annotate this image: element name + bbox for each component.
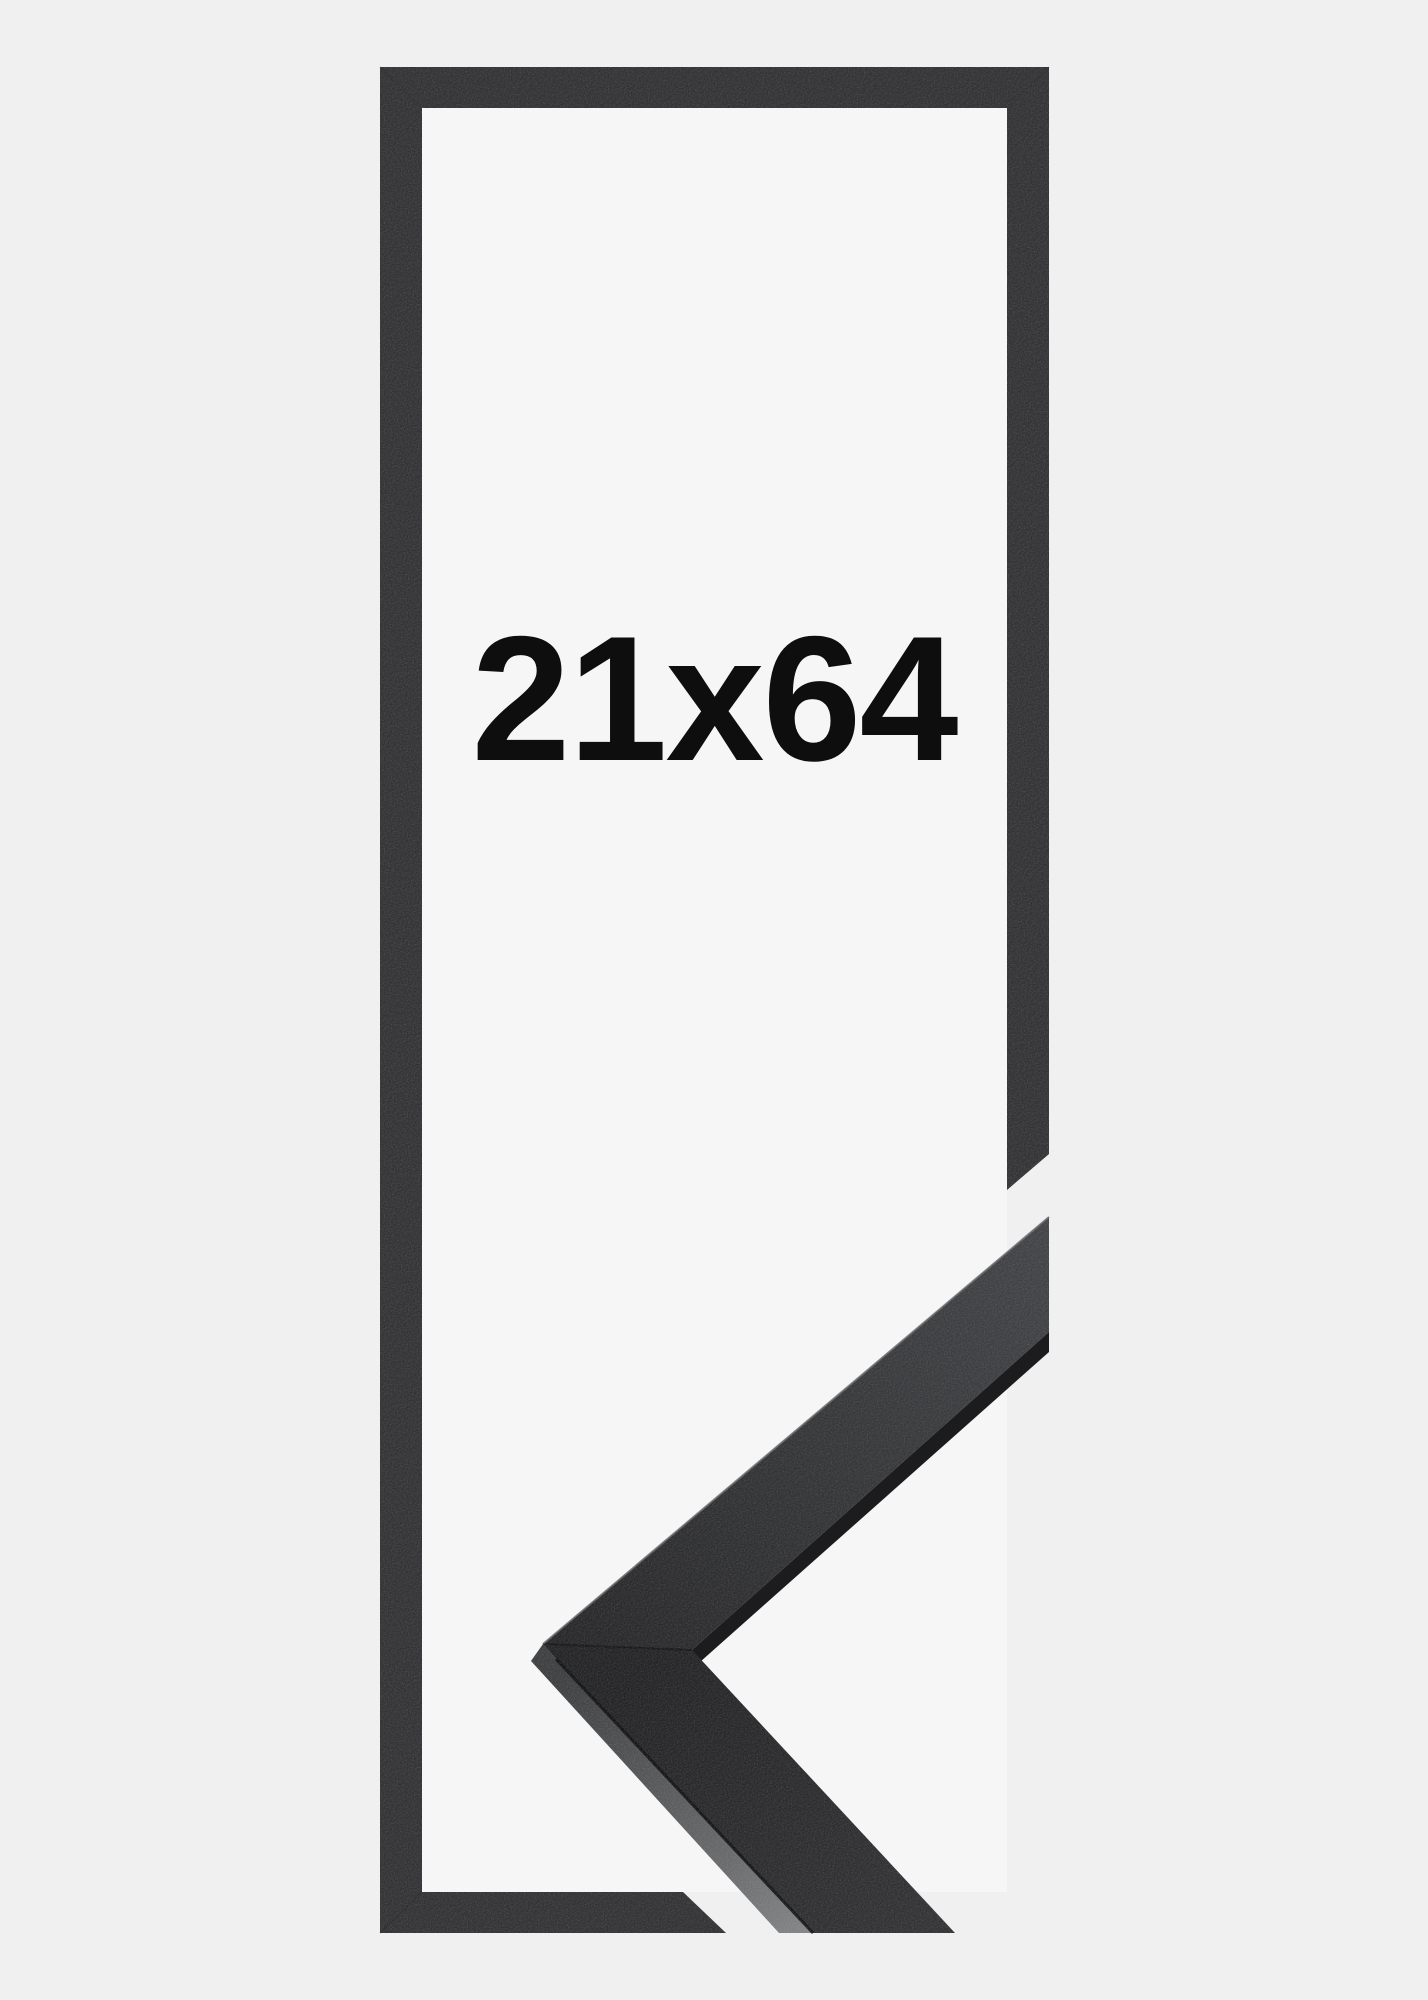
frame-size-illustration: 21x64 bbox=[0, 0, 1428, 2000]
size-label: 21x64 bbox=[472, 599, 959, 798]
product-image: 21x64 bbox=[0, 0, 1428, 2000]
